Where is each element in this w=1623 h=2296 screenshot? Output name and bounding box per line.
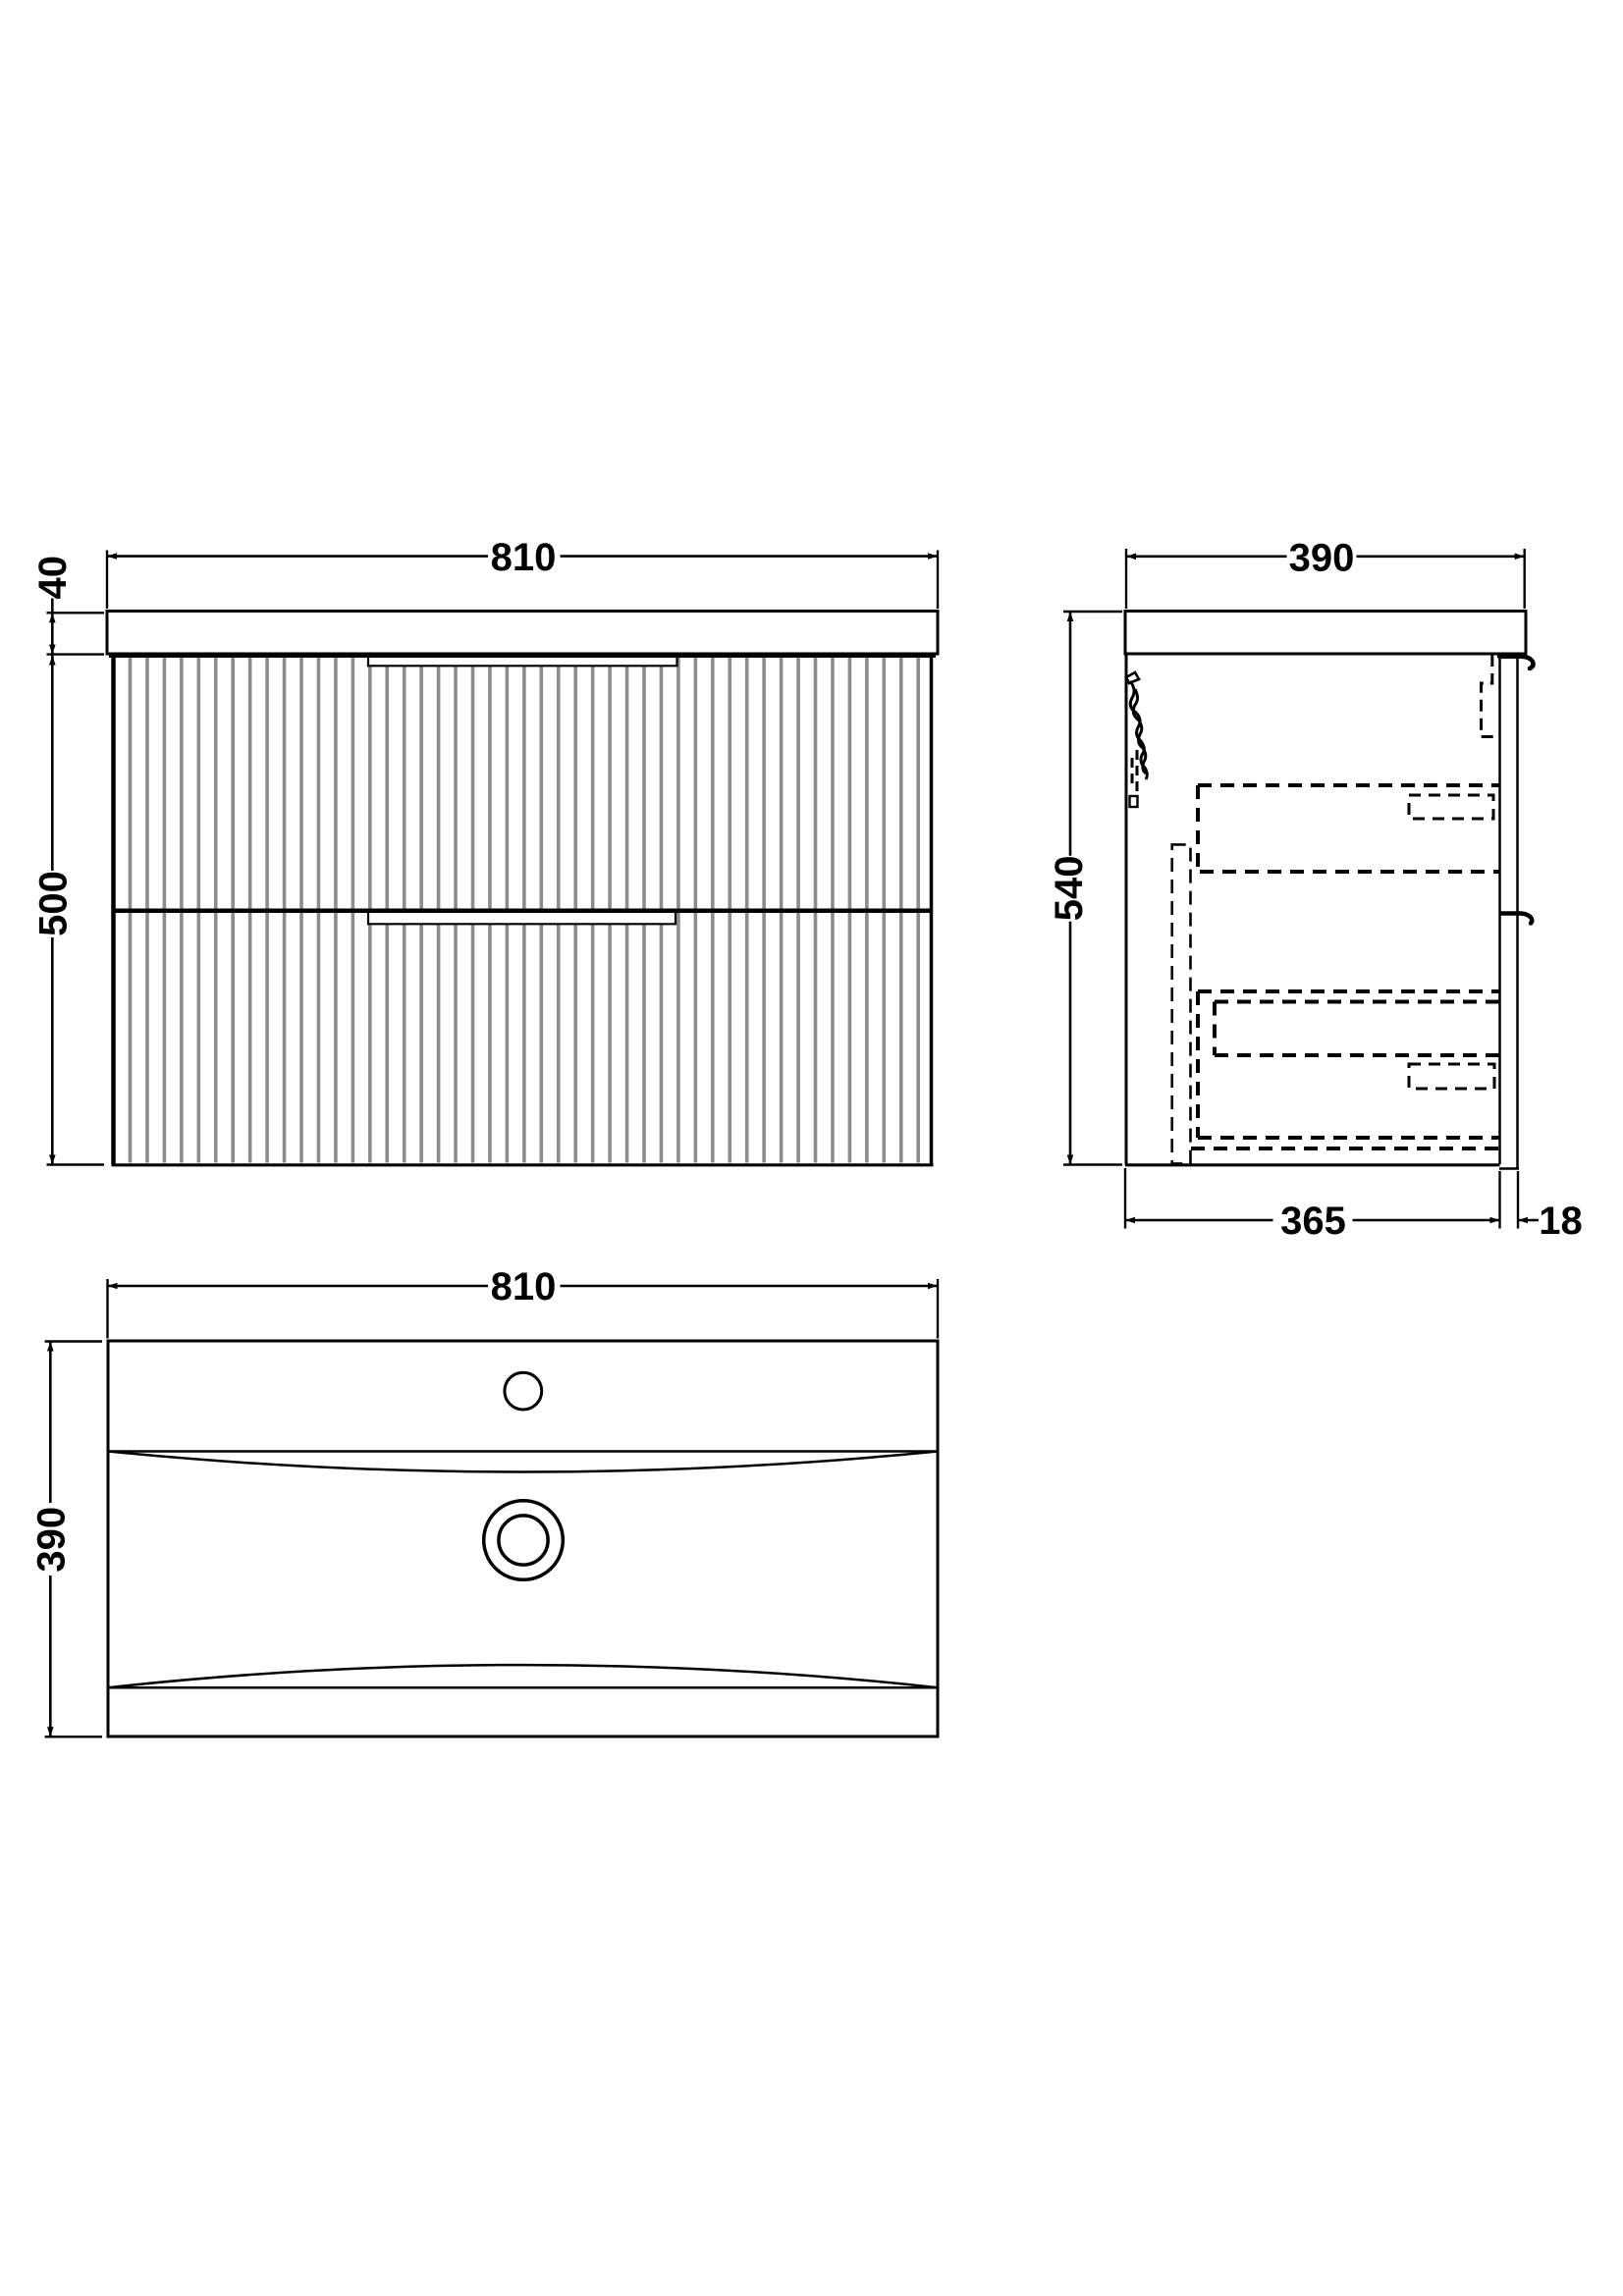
svg-text:390: 390 xyxy=(30,1507,74,1573)
svg-text:810: 810 xyxy=(491,1265,557,1308)
svg-text:810: 810 xyxy=(491,536,557,579)
svg-text:18: 18 xyxy=(1539,1200,1583,1243)
svg-text:390: 390 xyxy=(1289,537,1355,580)
svg-text:500: 500 xyxy=(32,871,76,936)
svg-text:540: 540 xyxy=(1048,856,1091,922)
svg-text:365: 365 xyxy=(1280,1200,1346,1243)
svg-text:40: 40 xyxy=(31,556,75,600)
